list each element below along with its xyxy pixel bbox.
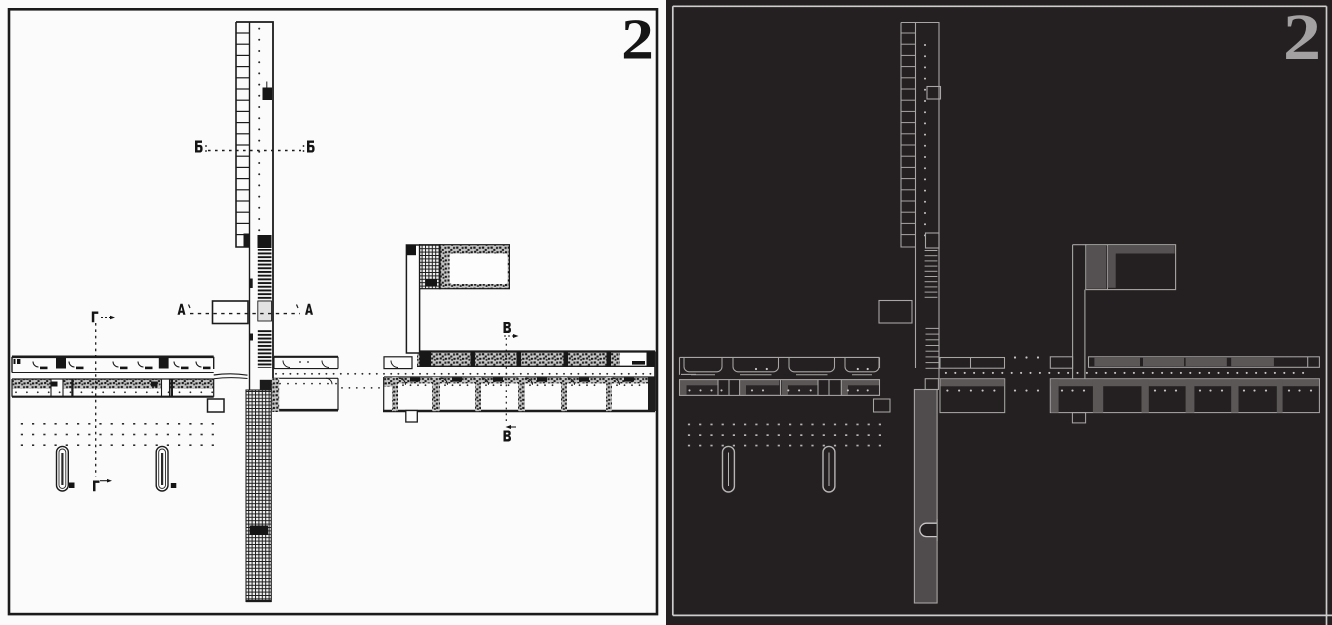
svg-text:2: 2: [1283, 1, 1321, 74]
svg-text:2: 2: [621, 7, 654, 72]
